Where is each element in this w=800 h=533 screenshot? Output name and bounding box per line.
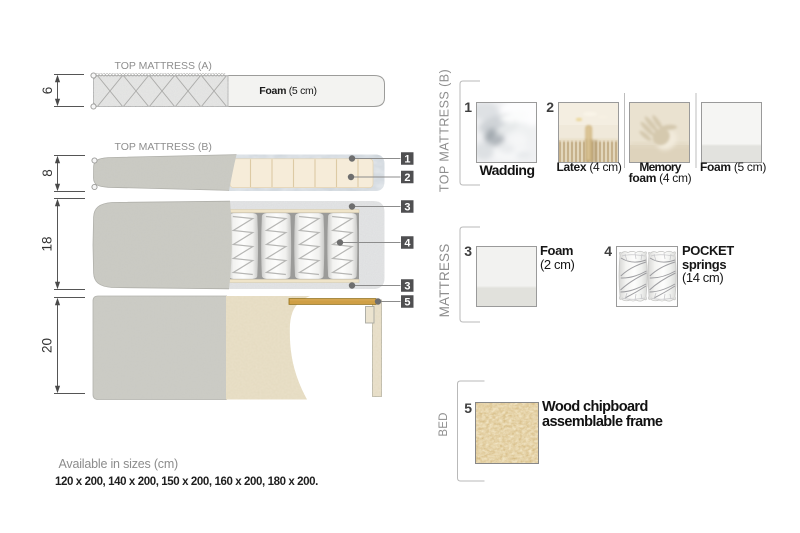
svg-text:1: 1: [404, 153, 410, 165]
svg-text:5: 5: [404, 296, 410, 308]
svg-text:8: 8: [40, 169, 55, 177]
svg-text:TOP MATTRESS (B): TOP MATTRESS (B): [438, 69, 452, 192]
svg-text:BED: BED: [438, 412, 450, 436]
svg-text:3: 3: [404, 201, 410, 213]
svg-text:18: 18: [40, 236, 55, 251]
svg-text:3: 3: [404, 280, 410, 292]
svg-text:2: 2: [404, 172, 410, 184]
svg-text:20: 20: [40, 338, 55, 353]
svg-text:6: 6: [40, 87, 55, 95]
svg-text:4: 4: [404, 237, 411, 249]
